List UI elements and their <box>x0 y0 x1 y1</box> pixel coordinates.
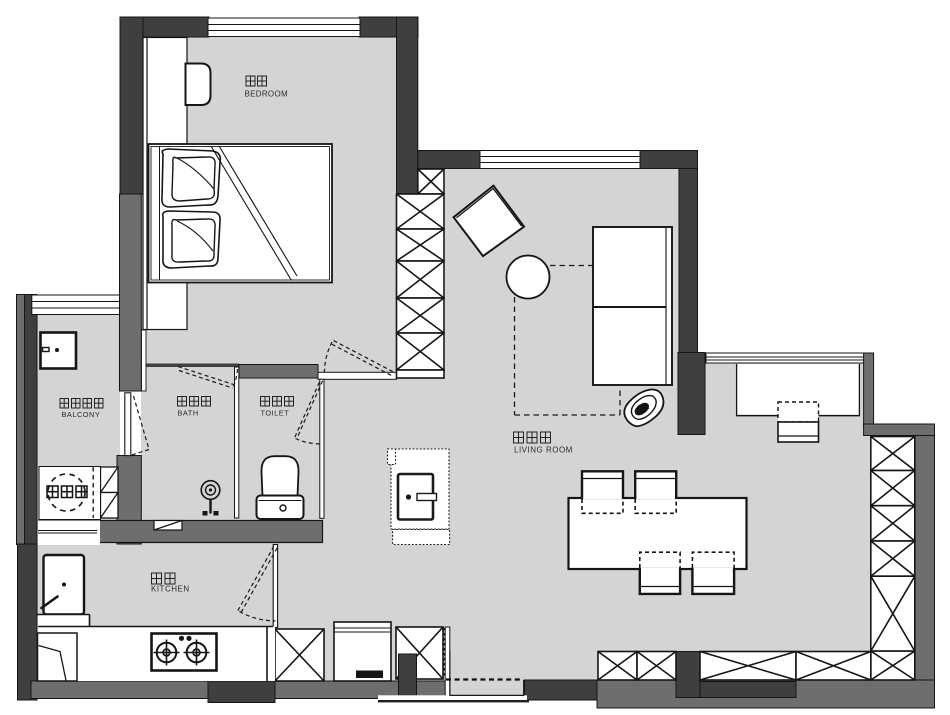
svg-text:TOILET: TOILET <box>261 409 290 418</box>
svg-text:KITCHEN: KITCHEN <box>151 585 190 594</box>
svg-text:BEDROOM: BEDROOM <box>245 90 288 99</box>
svg-text:BALCONY: BALCONY <box>62 410 101 419</box>
svg-text:LIVING ROOM: LIVING ROOM <box>514 446 573 455</box>
svg-text:BATH: BATH <box>178 409 199 418</box>
